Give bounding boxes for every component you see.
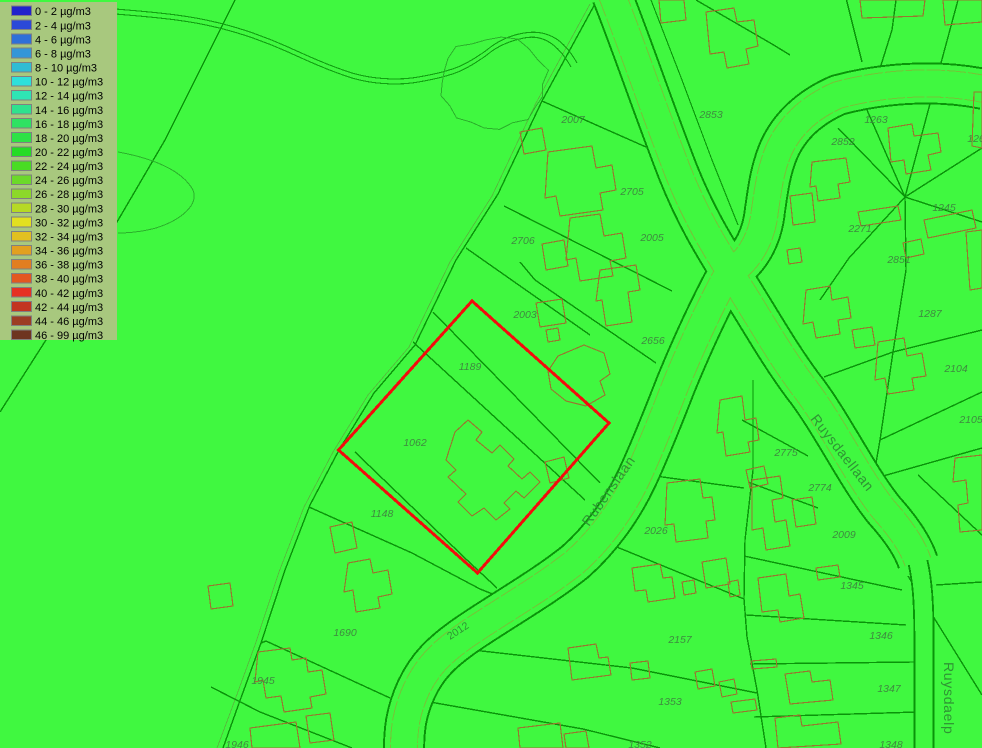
- svg-text:2104: 2104: [943, 363, 968, 375]
- svg-text:2157: 2157: [667, 634, 693, 646]
- svg-text:1352: 1352: [628, 739, 652, 748]
- svg-text:32 - 34 µg/m3: 32 - 34 µg/m3: [35, 231, 103, 243]
- svg-text:1345: 1345: [840, 580, 864, 592]
- svg-text:126: 126: [967, 133, 982, 145]
- svg-text:1945: 1945: [251, 675, 275, 687]
- svg-text:28 - 30 µg/m3: 28 - 30 µg/m3: [35, 203, 103, 215]
- svg-text:2852: 2852: [830, 136, 855, 148]
- svg-text:2705: 2705: [619, 186, 644, 198]
- svg-text:24 - 26 µg/m3: 24 - 26 µg/m3: [35, 175, 103, 187]
- svg-text:2105: 2105: [958, 414, 982, 426]
- svg-text:1353: 1353: [658, 696, 682, 708]
- svg-text:Ruysdaelp: Ruysdaelp: [941, 662, 957, 734]
- svg-text:1245: 1245: [932, 202, 956, 214]
- svg-text:2026: 2026: [643, 525, 668, 537]
- svg-text:2009: 2009: [831, 529, 856, 541]
- svg-text:6 - 8 µg/m3: 6 - 8 µg/m3: [35, 48, 91, 60]
- svg-text:1348: 1348: [879, 739, 903, 748]
- svg-text:2775: 2775: [773, 447, 798, 459]
- svg-text:1346: 1346: [869, 630, 893, 642]
- svg-text:1347: 1347: [877, 683, 902, 695]
- svg-text:38 - 40 µg/m3: 38 - 40 µg/m3: [35, 274, 103, 286]
- svg-text:10 - 12 µg/m3: 10 - 12 µg/m3: [35, 77, 103, 89]
- svg-text:1690: 1690: [333, 627, 357, 639]
- svg-text:12 - 14 µg/m3: 12 - 14 µg/m3: [35, 91, 103, 103]
- svg-text:4 - 6 µg/m3: 4 - 6 µg/m3: [35, 34, 91, 46]
- svg-text:22 - 24 µg/m3: 22 - 24 µg/m3: [35, 161, 103, 173]
- svg-text:2656: 2656: [640, 335, 665, 347]
- svg-text:1263: 1263: [864, 114, 888, 126]
- svg-text:36 - 38 µg/m3: 36 - 38 µg/m3: [35, 260, 103, 272]
- svg-text:26 - 28 µg/m3: 26 - 28 µg/m3: [35, 189, 103, 201]
- svg-text:2853: 2853: [698, 109, 723, 121]
- svg-text:18 - 20 µg/m3: 18 - 20 µg/m3: [35, 133, 103, 145]
- svg-text:2271: 2271: [847, 223, 871, 235]
- svg-text:2003: 2003: [512, 309, 537, 321]
- svg-text:1189: 1189: [459, 361, 482, 373]
- svg-text:14 - 16 µg/m3: 14 - 16 µg/m3: [35, 105, 103, 117]
- svg-text:8 - 10 µg/m3: 8 - 10 µg/m3: [35, 63, 97, 75]
- svg-text:20 - 22 µg/m3: 20 - 22 µg/m3: [35, 147, 103, 159]
- svg-text:1062: 1062: [403, 437, 427, 449]
- svg-text:1148: 1148: [371, 508, 394, 520]
- svg-text:16 - 18 µg/m3: 16 - 18 µg/m3: [35, 119, 103, 131]
- svg-text:2 - 4 µg/m3: 2 - 4 µg/m3: [35, 20, 91, 32]
- svg-text:30 - 32 µg/m3: 30 - 32 µg/m3: [35, 217, 103, 229]
- svg-text:1946: 1946: [225, 739, 249, 748]
- svg-text:2706: 2706: [510, 235, 535, 247]
- svg-text:2005: 2005: [639, 232, 664, 244]
- svg-text:0 - 2 µg/m3: 0 - 2 µg/m3: [35, 6, 91, 18]
- svg-text:1287: 1287: [918, 308, 943, 320]
- svg-text:42 - 44 µg/m3: 42 - 44 µg/m3: [35, 302, 103, 314]
- svg-text:2851: 2851: [886, 254, 910, 266]
- svg-text:40 - 42 µg/m3: 40 - 42 µg/m3: [35, 288, 103, 300]
- svg-text:44 - 46 µg/m3: 44 - 46 µg/m3: [35, 316, 103, 328]
- svg-text:2774: 2774: [807, 482, 832, 494]
- svg-text:2007: 2007: [560, 114, 586, 126]
- svg-text:34 - 36 µg/m3: 34 - 36 µg/m3: [35, 246, 103, 258]
- svg-text:46 - 99 µg/m3: 46 - 99 µg/m3: [35, 330, 103, 342]
